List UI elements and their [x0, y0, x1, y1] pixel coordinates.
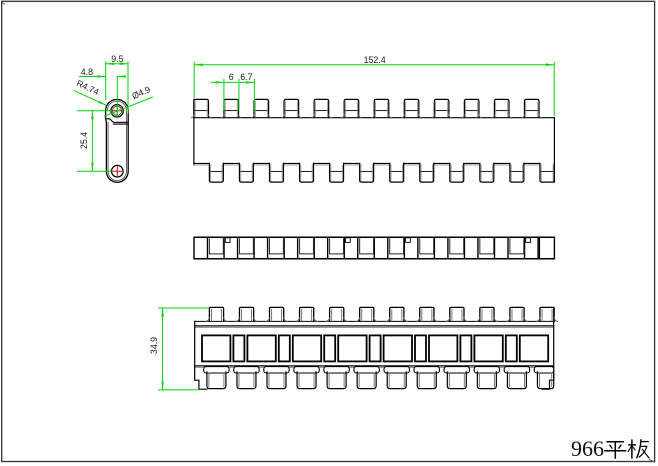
- svg-text:966: 966: [571, 436, 604, 461]
- svg-text:152.4: 152.4: [364, 55, 386, 65]
- svg-text:6.7: 6.7: [240, 72, 252, 82]
- svg-text:34.9: 34.9: [149, 337, 159, 354]
- svg-text:25.4: 25.4: [79, 132, 89, 149]
- svg-text:6: 6: [229, 72, 234, 82]
- svg-text:4.8: 4.8: [81, 67, 93, 77]
- svg-text:9.5: 9.5: [111, 54, 123, 64]
